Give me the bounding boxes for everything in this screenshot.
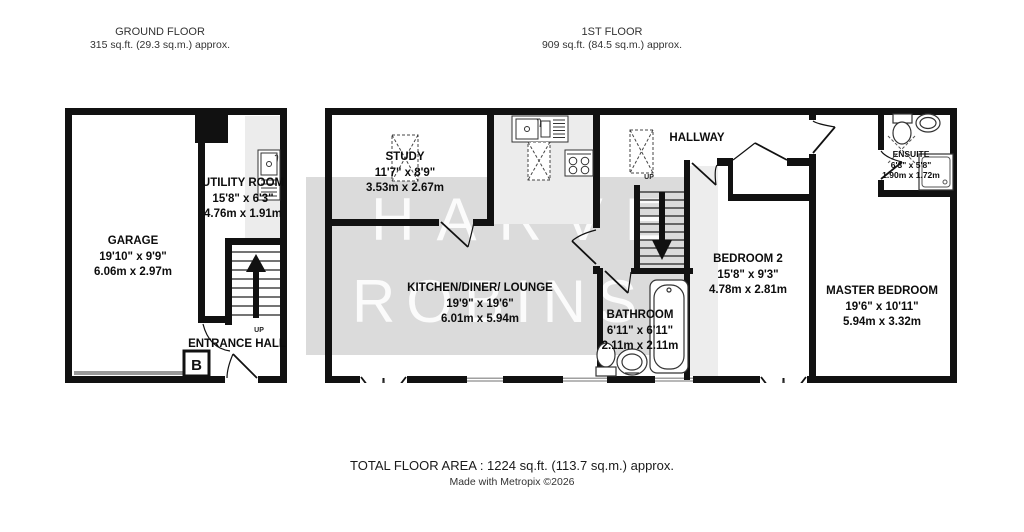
garage-door-line: [74, 371, 189, 375]
cupboard-door-arc: [733, 143, 755, 160]
bathroom-label: BATHROOM 6'11" x 6'11" 2.11m x 2.11m: [602, 308, 679, 355]
bathroom-door-arc: [628, 272, 631, 293]
first-floor-header: 1ST FLOOR 909 sq.ft. (84.5 sq.m.) approx…: [472, 26, 752, 52]
toilet-ensuite-icon: [893, 114, 912, 144]
window-bathroom: [563, 376, 607, 383]
study-door-leaf: [441, 222, 468, 247]
bathroom-top-wall: [631, 268, 693, 274]
ground-floor-area: 315 sq.ft. (29.3 sq.m.) approx.: [20, 39, 300, 52]
boiler-label: B: [191, 357, 202, 374]
window-lounge: [467, 376, 503, 383]
entrance-door-leaf: [233, 354, 257, 378]
first-floor-title: 1ST FLOOR: [472, 26, 752, 39]
hallway-unit-dashed-icon: [630, 130, 653, 173]
hob-icon: [565, 150, 593, 176]
lounge-door-arc: [572, 230, 596, 241]
first-floor-plan: STUDY 11'7" x 8'9" 3.53m x 2.67m KITCHEN…: [325, 108, 957, 383]
study-label: STUDY 11'7" x 8'9" 3.53m x 2.67m: [366, 150, 444, 197]
total-floor-area: TOTAL FLOOR AREA : 1224 sq.ft. (113.7 sq…: [262, 458, 762, 473]
study-right-wall: [487, 112, 494, 226]
entrance-door-arc: [227, 354, 233, 378]
master-bedroom-label: MASTER BEDROOM 19'6" x 10'11" 5.94m x 3.…: [826, 284, 938, 331]
metropix-credit: Made with Metropix ©2026: [262, 476, 762, 488]
utility-room-label: UTILITY ROOM 15'8" x 6'3" 4.76m x 1.91m: [202, 176, 284, 223]
study-bottom-wall: [329, 219, 439, 226]
ensuite-left-wall: [878, 108, 884, 150]
kitchen-diner-lounge-label: KITCHEN/DINER/ LOUNGE 19'9" x 19'6" 6.01…: [407, 281, 553, 328]
garage-label: GARAGE 19'10" x 9'9" 6.06m x 2.97m: [94, 234, 172, 281]
basin-ensuite-icon: [916, 114, 940, 132]
ground-floor-plan: B GARAGE 19'10" x 9'9" 6.06m x 2.97m UTI…: [65, 108, 287, 383]
stairs-left-wall: [634, 185, 640, 268]
master-door-arc: [813, 121, 835, 127]
floorplan-page: GROUND FLOOR 315 sq.ft. (29.3 sq.m.) app…: [0, 0, 1024, 532]
up-label-ground: UP: [254, 327, 264, 334]
bedroom2-label: BEDROOM 2 15'8" x 9'3" 4.78m x 2.81m: [709, 252, 787, 299]
windows: [467, 376, 693, 383]
up-arrow-icon: [246, 254, 266, 318]
ground-floor-title: GROUND FLOOR: [20, 26, 300, 39]
french-doors-master: [761, 377, 806, 383]
lounge-door-leaf: [572, 241, 596, 264]
study-door-arc: [468, 222, 474, 247]
cupboard-door-leaf: [755, 143, 787, 160]
first-floor-area: 909 sq.ft. (84.5 sq.m.) approx.: [472, 39, 752, 52]
bathroom-door-leaf: [605, 271, 628, 293]
ground-floor-header: GROUND FLOOR 315 sq.ft. (29.3 sq.m.) app…: [20, 26, 300, 52]
up-label-first: UP: [644, 174, 654, 181]
french-doors-lounge: [361, 377, 406, 383]
cupboard-wall: [728, 166, 733, 194]
kitchen-sink-icon: [512, 116, 568, 142]
kitchen-hall-wall: [593, 112, 600, 228]
kitchen-unit-dashed-icon: [528, 142, 550, 180]
entrance-hall-label: ENTRANCE HALL: [188, 337, 286, 353]
ensuite-bottom-wall: [878, 190, 957, 197]
ensuite-label: ENSUITE 6'3" x 5'8" 1.90m x 1.72m: [882, 149, 940, 181]
down-arrow-icon: [652, 192, 672, 260]
hallway-label: HALLWAY: [669, 131, 724, 147]
master-door-leaf: [813, 127, 835, 153]
master-divider-wall: [809, 108, 816, 120]
